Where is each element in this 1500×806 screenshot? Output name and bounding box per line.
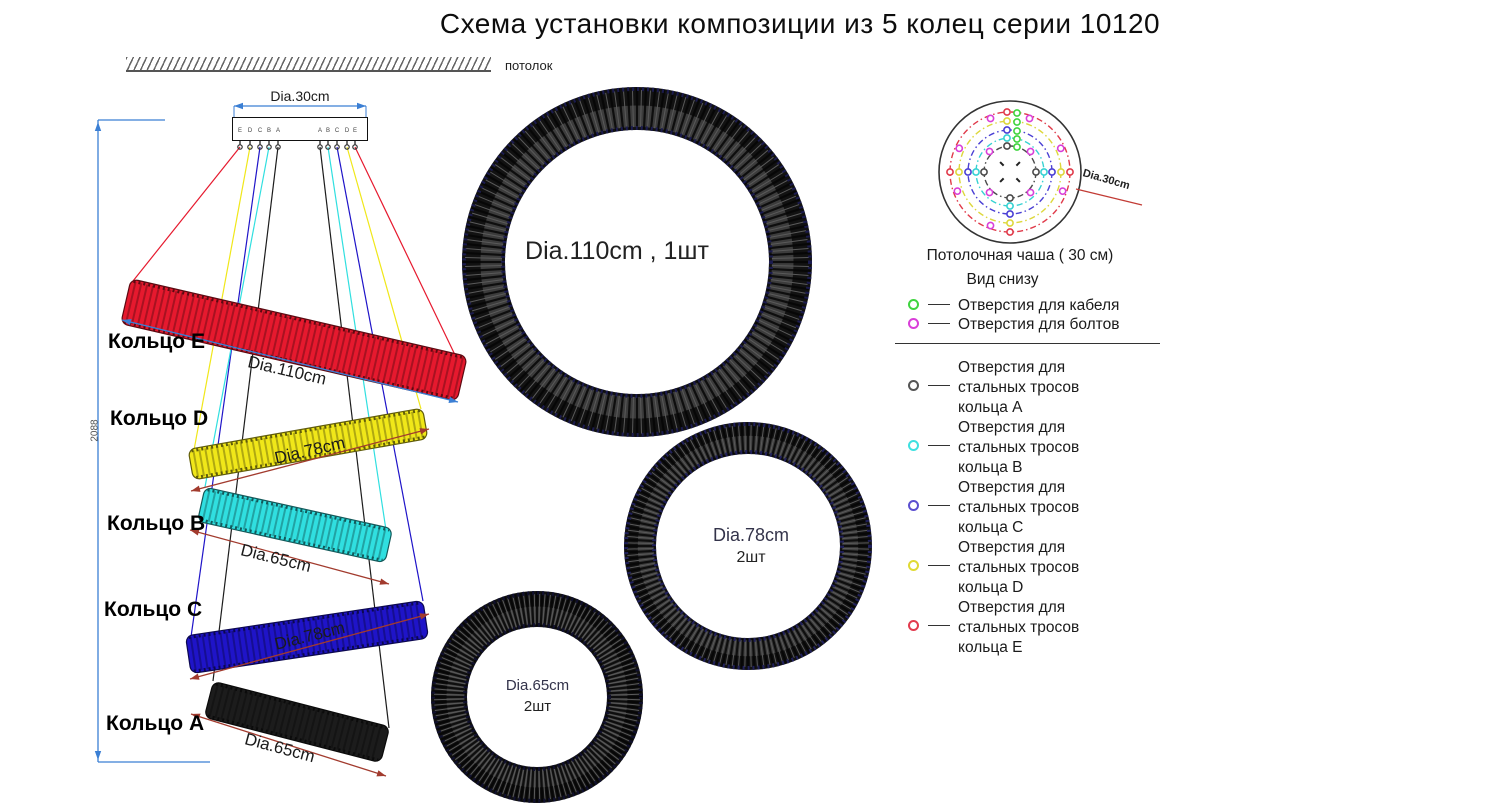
- cup-subtitle: Вид снизу: [895, 271, 1110, 289]
- legend-ring-label-line: кольца D: [958, 578, 1023, 598]
- legend-hole-icon: [908, 380, 919, 391]
- legend-separator: [895, 343, 1160, 344]
- legend-hole-icon: [908, 440, 919, 451]
- hook-letter: E: [351, 128, 359, 134]
- legend-ring-label-line: стальных тросов: [958, 618, 1079, 638]
- legend-ring-label-line: Отверстия для: [958, 418, 1065, 438]
- legend-dash: [928, 625, 950, 626]
- legend-ring-label-line: стальных тросов: [958, 378, 1079, 398]
- medium-ring-label: Dia.78cm: [681, 525, 821, 546]
- ring-label-A: Кольцо A: [106, 712, 204, 736]
- legend-dash: [928, 565, 950, 566]
- medium-ring-qty: 2шт: [681, 549, 821, 567]
- diagram-artwork: [0, 0, 1500, 806]
- legend-ring-label-line: кольца E: [958, 638, 1023, 658]
- legend-hole-icon: [908, 299, 919, 310]
- legend-ring-label-line: стальных тросов: [958, 438, 1079, 458]
- ceiling-hatch: [126, 57, 491, 72]
- ring-label-C: Кольцо C: [104, 598, 202, 622]
- hook-letter: A: [274, 128, 282, 134]
- legend-ring-label-line: стальных тросов: [958, 498, 1079, 518]
- legend-ring-label-line: Отверстия для: [958, 478, 1065, 498]
- hook-letter: A: [316, 128, 324, 134]
- ring-label-B: Кольцо B: [107, 512, 205, 536]
- hook-letter: C: [333, 128, 341, 134]
- legend-hole-icon: [908, 500, 919, 511]
- legend-ring-label-line: кольца B: [958, 458, 1023, 478]
- hook-letter: B: [265, 128, 273, 134]
- hook-letter: E: [236, 128, 244, 134]
- ring-label-E: Кольцо E: [108, 330, 205, 354]
- legend-dash: [928, 505, 950, 506]
- legend-ring-label-line: Отверстия для: [958, 598, 1065, 618]
- legend-ring-label-line: кольца A: [958, 398, 1023, 418]
- ceiling-label: потолок: [505, 58, 552, 73]
- big-ring-label: Dia.110cm , 1шт: [492, 237, 742, 266]
- legend-dash: [928, 445, 950, 446]
- hook-letter: B: [324, 128, 332, 134]
- small-ring-qty: 2шт: [475, 698, 600, 715]
- legend-ring-label-line: кольца C: [958, 518, 1023, 538]
- hook-letter: D: [246, 128, 254, 134]
- legend-top-label: Отверстия для кабеля: [958, 297, 1119, 314]
- legend-ring-label-line: Отверстия для: [958, 538, 1065, 558]
- legend-top-label: Отверстия для болтов: [958, 316, 1119, 333]
- page-title: Схема установки композиции из 5 колец се…: [100, 8, 1500, 40]
- legend-hole-icon: [908, 620, 919, 631]
- hook-letter: C: [256, 128, 264, 134]
- legend-dash: [928, 304, 950, 305]
- height-dimension-label: 2088: [90, 419, 101, 441]
- legend-ring-label-line: Отверстия для: [958, 358, 1065, 378]
- diagram-canvas: Схема установки композиции из 5 колец се…: [0, 0, 1500, 806]
- cup-title: Потолочная чаша ( 30 см): [895, 247, 1145, 265]
- legend-ring-label-line: стальных тросов: [958, 558, 1079, 578]
- legend-hole-icon: [908, 318, 919, 329]
- legend-dash: [928, 385, 950, 386]
- legend-hole-icon: [908, 560, 919, 571]
- plate-diameter-label: Dia.30cm: [233, 88, 367, 104]
- legend-dash: [928, 323, 950, 324]
- small-ring-label: Dia.65cm: [475, 677, 600, 694]
- ring-label-D: Кольцо D: [110, 407, 208, 431]
- hook-letter: D: [343, 128, 351, 134]
